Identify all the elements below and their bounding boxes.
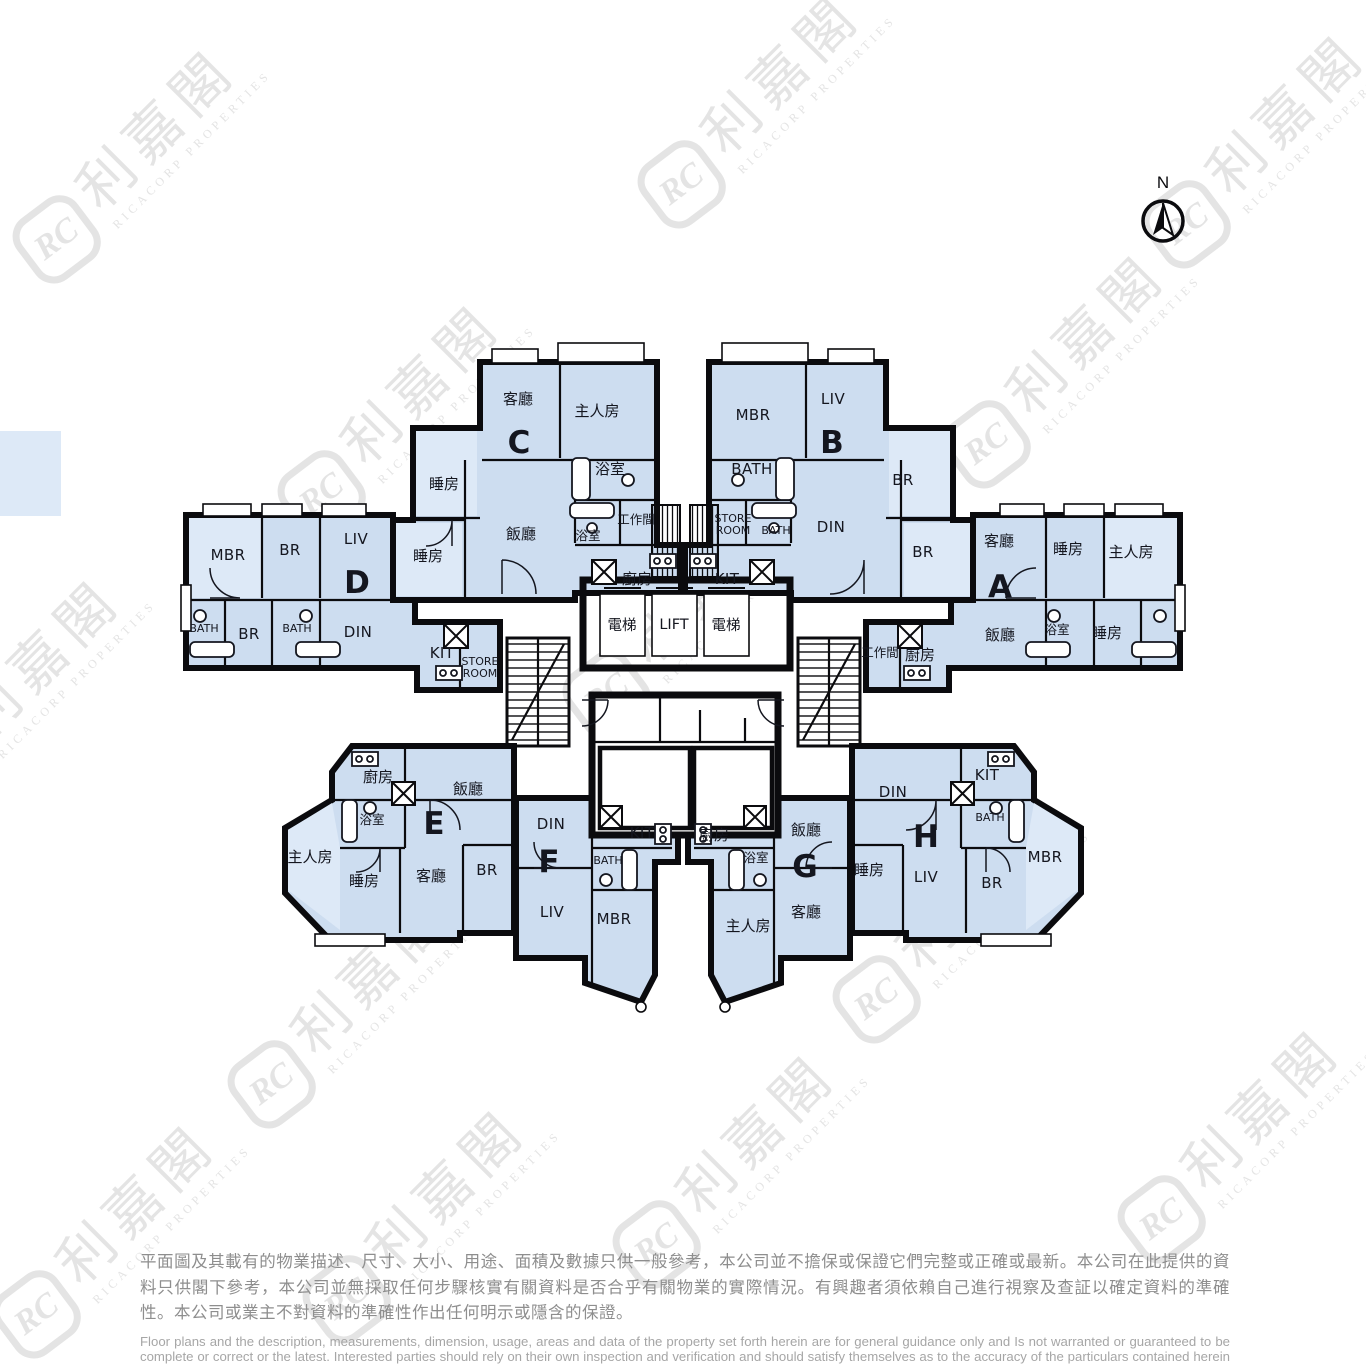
compass-n-label: N [1157, 173, 1169, 192]
label-b-bath1: BATH [731, 460, 772, 478]
staircase-left [507, 638, 569, 746]
label-c-living: 客廳 [503, 390, 533, 408]
label-h-kit: KIT [975, 766, 1000, 784]
label-c-bath2: 浴室 [575, 528, 600, 543]
label-c-kitchen: 廚房 [622, 570, 652, 588]
label-b-kit: KIT [715, 570, 740, 588]
label-e-letter: E [423, 806, 444, 842]
label-g-kitchen: 廚房 [699, 826, 729, 844]
label-c-letter: C [508, 425, 531, 461]
label-e-dining: 飯廳 [453, 780, 483, 798]
label-g-dining: 飯廳 [791, 821, 821, 839]
label-b-liv: LIV [821, 390, 846, 408]
label-e-living: 客廳 [416, 867, 446, 885]
label-b-br1: BR [892, 471, 914, 489]
label-c-bath1: 浴室 [595, 460, 625, 478]
label-lift-right: 電梯 [712, 617, 741, 634]
label-e-bed: 睡房 [349, 872, 379, 890]
label-c-master: 主人房 [574, 402, 619, 420]
disclaimer-block: 平面圖及其載有的物業描述、尺寸、大小、用途、面積及數據只供一般參考，本公司並不擔… [140, 1250, 1230, 1366]
staircase-right [798, 638, 860, 746]
label-g-living: 客廳 [791, 903, 821, 921]
label-e-master: 主人房 [287, 848, 332, 866]
label-a-bed2: 睡房 [1092, 624, 1122, 642]
label-a-letter: A [988, 569, 1012, 605]
label-b-br2: BR [912, 543, 934, 561]
label-a-living: 客廳 [984, 532, 1014, 550]
label-e-bath: 浴室 [359, 812, 384, 827]
floorplan-page: RC利嘉閣RICACORP PROPERTIES RC利嘉閣RICACORP P… [0, 0, 1366, 1366]
label-h-br: BR [981, 874, 1003, 892]
label-h-din: DIN [879, 783, 907, 801]
label-f-liv: LIV [540, 903, 565, 921]
disclaimer-chinese: 平面圖及其載有的物業描述、尺寸、大小、用途、面積及數據只供一般參考，本公司並不擔… [140, 1250, 1230, 1327]
label-a-kitchen: 廚房 [905, 646, 935, 664]
label-c-bed2: 睡房 [413, 547, 443, 565]
label-a-utility: 工作間 [861, 645, 899, 660]
label-a-bed1: 睡房 [1053, 540, 1083, 558]
label-g-master: 主人房 [725, 917, 770, 935]
label-h-bed: 睡房 [854, 861, 884, 879]
north-arrow-icon [1163, 203, 1173, 235]
label-f-mbr: MBR [597, 910, 632, 928]
label-lift-center: LIFT [659, 617, 688, 633]
label-b-din: DIN [817, 518, 845, 536]
label-c-utility: 工作間 [617, 512, 655, 527]
label-d-mbr: MBR [211, 546, 246, 564]
label-d-br2: BR [238, 625, 260, 643]
label-d-bath1: BATH [189, 622, 218, 635]
label-g-bath: 浴室 [743, 850, 768, 865]
label-e-br: BR [476, 861, 498, 879]
label-a-bath: 浴室 [1044, 622, 1069, 637]
label-d-din: DIN [344, 623, 372, 641]
label-d-letter: D [344, 565, 370, 601]
label-d-kit: KIT [430, 644, 455, 662]
label-e-kitchen: 廚房 [363, 768, 393, 786]
label-d-bath2: BATH [282, 622, 311, 635]
label-a-master: 主人房 [1108, 543, 1153, 561]
north-compass: N [1130, 168, 1200, 252]
label-b-store2: ROOM [716, 524, 750, 537]
label-a-dining: 飯廳 [985, 626, 1015, 644]
label-f-kit: KIT [630, 824, 655, 842]
label-c-dining: 飯廳 [506, 525, 536, 543]
label-h-liv: LIV [914, 868, 939, 886]
label-lift-left: 電梯 [608, 617, 637, 634]
label-h-mbr: MBR [1028, 848, 1063, 866]
disclaimer-english: Floor plans and the description, measure… [140, 1334, 1230, 1366]
label-f-din: DIN [537, 815, 565, 833]
label-f-bath: BATH [593, 854, 622, 867]
label-b-bath2: BATH [761, 524, 790, 537]
label-b-letter: B [820, 425, 844, 461]
north-arrow-icon [1153, 203, 1163, 235]
label-d-br1: BR [279, 541, 301, 559]
label-h-bath: BATH [975, 811, 1004, 824]
label-b-mbr: MBR [736, 406, 771, 424]
label-d-liv: LIV [344, 530, 369, 548]
label-f-letter: F [538, 844, 559, 880]
label-d-store2: ROOM [463, 667, 497, 680]
label-g-letter: G [792, 849, 817, 885]
label-h-letter: H [913, 819, 939, 855]
label-c-bed1: 睡房 [429, 475, 459, 493]
